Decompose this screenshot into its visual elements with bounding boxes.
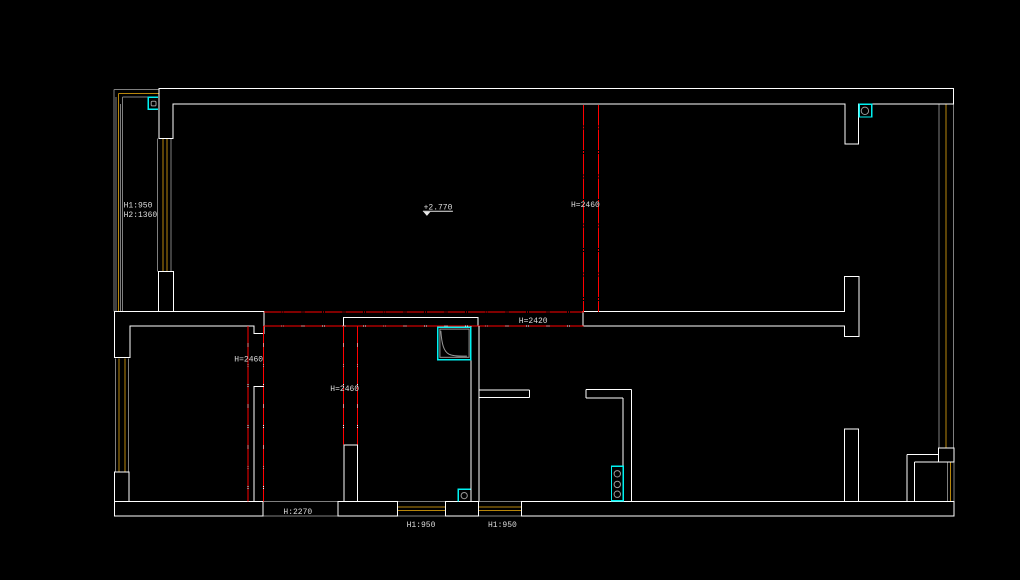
- svg-text:H2:1360: H2:1360: [124, 211, 158, 220]
- svg-text:H1:950: H1:950: [407, 521, 436, 530]
- svg-text:H1:950: H1:950: [488, 521, 517, 530]
- svg-text:H=2460: H=2460: [234, 356, 263, 365]
- svg-text:H=2460: H=2460: [571, 201, 600, 210]
- svg-text:H1:950: H1:950: [124, 201, 153, 210]
- svg-text:H=2460: H=2460: [330, 385, 359, 394]
- svg-text:H=2420: H=2420: [519, 317, 548, 326]
- svg-text:H:2270: H:2270: [283, 508, 312, 517]
